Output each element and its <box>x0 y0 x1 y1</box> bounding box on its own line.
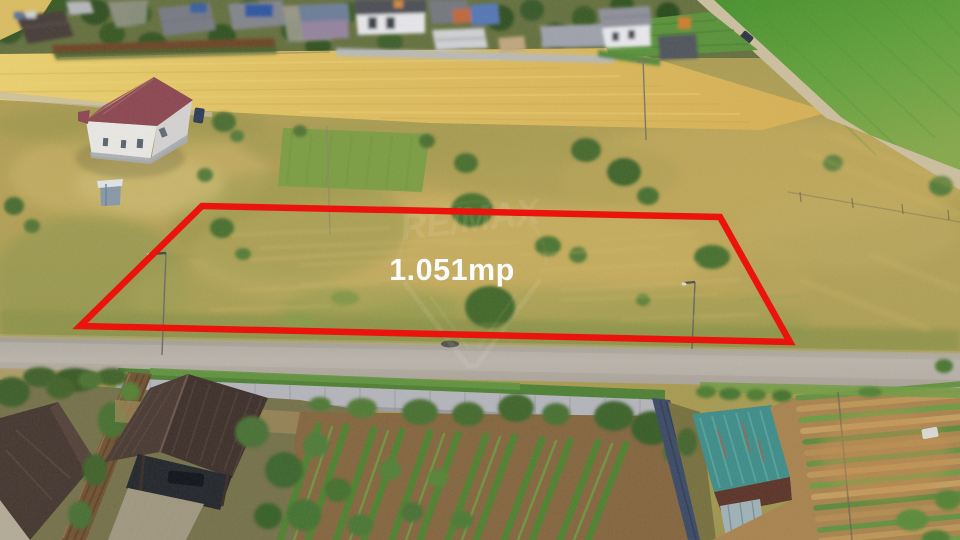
svg-text:1.051mp: 1.051mp <box>389 253 515 287</box>
